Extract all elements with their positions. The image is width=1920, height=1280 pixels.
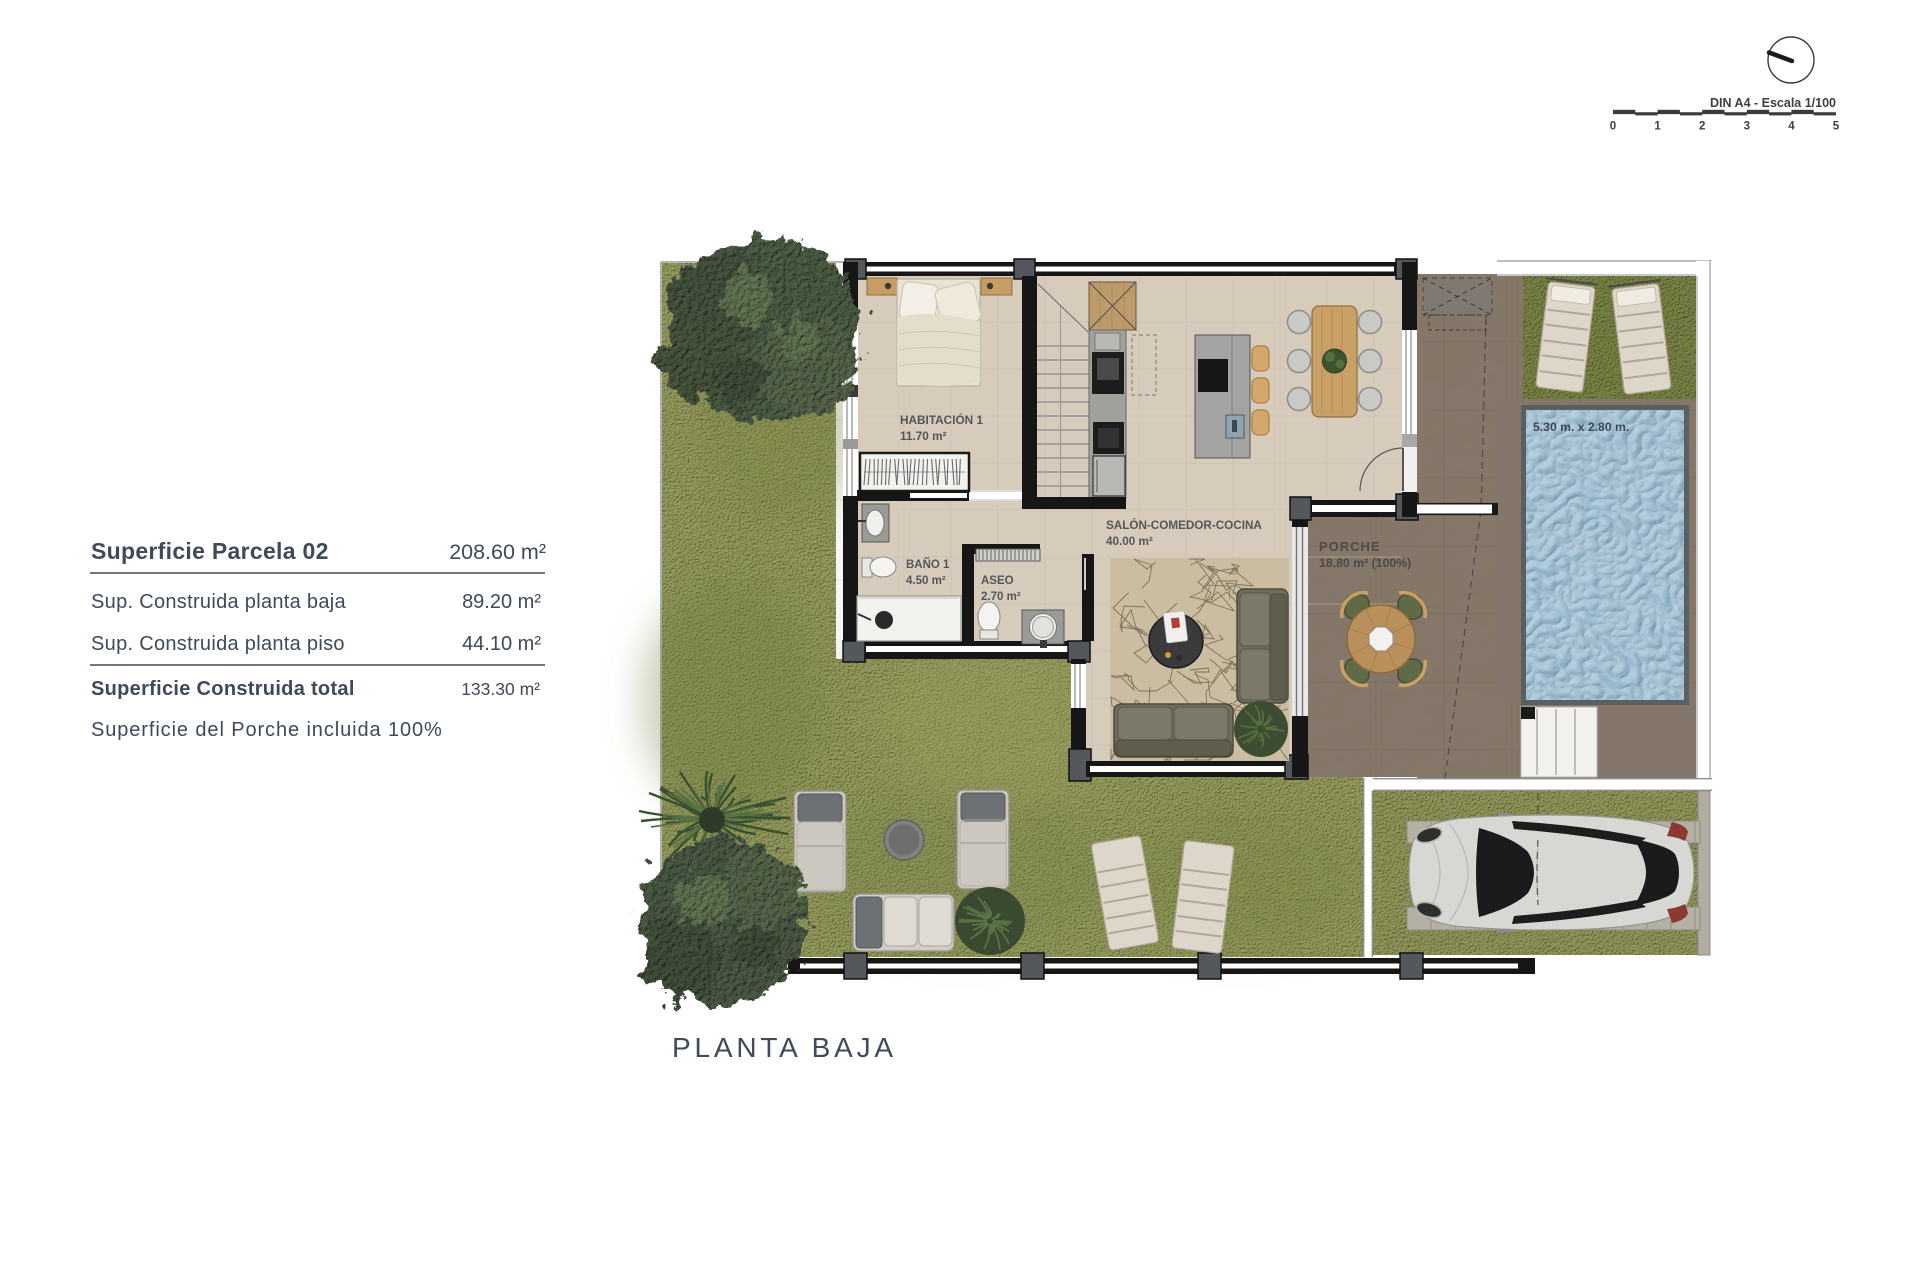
svg-text:4.50 m²: 4.50 m² bbox=[906, 575, 946, 587]
svg-text:3: 3 bbox=[1744, 121, 1750, 133]
svg-text:40.00 m²: 40.00 m² bbox=[1106, 535, 1153, 548]
svg-text:Superficie del Porche incluida: Superficie del Porche incluida 100% bbox=[91, 719, 443, 741]
svg-text:Sup. Construida planta baja: Sup. Construida planta baja bbox=[91, 591, 347, 613]
svg-text:5: 5 bbox=[1833, 121, 1840, 133]
svg-text:2: 2 bbox=[1699, 121, 1705, 133]
svg-text:11.70 m²: 11.70 m² bbox=[900, 429, 947, 443]
svg-text:Sup. Construida planta piso: Sup. Construida planta piso bbox=[91, 633, 345, 655]
svg-text:133.30 m²: 133.30 m² bbox=[461, 679, 540, 699]
svg-text:DIN A4 - Escala 1/100: DIN A4 - Escala 1/100 bbox=[1710, 96, 1836, 110]
svg-text:208.60 m²: 208.60 m² bbox=[449, 540, 546, 564]
svg-text:ASEO: ASEO bbox=[981, 575, 1014, 587]
svg-text:PORCHE: PORCHE bbox=[1319, 539, 1381, 554]
svg-text:2.70 m²: 2.70 m² bbox=[981, 591, 1021, 603]
svg-text:18.80 m² (100%): 18.80 m² (100%) bbox=[1319, 556, 1411, 570]
svg-text:0: 0 bbox=[1610, 121, 1616, 133]
svg-text:HABITACIÓN 1: HABITACIÓN 1 bbox=[900, 413, 983, 427]
svg-text:PLANTA BAJA: PLANTA BAJA bbox=[672, 1032, 897, 1063]
svg-text:Superficie Construida total: Superficie Construida total bbox=[91, 678, 355, 700]
svg-text:1: 1 bbox=[1654, 121, 1661, 133]
svg-text:4: 4 bbox=[1788, 121, 1795, 133]
svg-text:89.20 m²: 89.20 m² bbox=[462, 591, 541, 613]
svg-text:5.30 m. x 2.80 m.: 5.30 m. x 2.80 m. bbox=[1533, 420, 1629, 434]
svg-text:44.10 m²: 44.10 m² bbox=[462, 633, 541, 655]
svg-text:BAÑO 1: BAÑO 1 bbox=[906, 558, 950, 571]
svg-text:Superficie Parcela 02: Superficie Parcela 02 bbox=[91, 538, 329, 564]
svg-text:SALÓN-COMEDOR-COCINA: SALÓN-COMEDOR-COCINA bbox=[1106, 519, 1262, 532]
